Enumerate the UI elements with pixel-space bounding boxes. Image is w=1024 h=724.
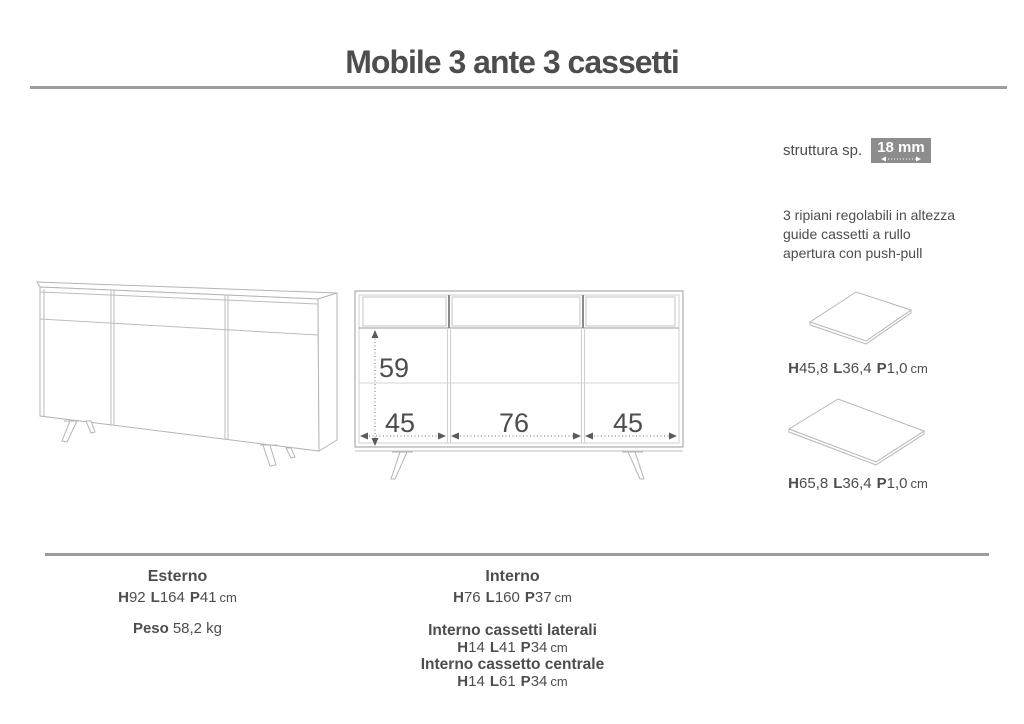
dim-letter-l: L: [490, 639, 499, 656]
dim-unit: cm: [550, 674, 567, 689]
front-view-drawing: 59 45 76 45: [350, 283, 695, 488]
dim-unit: cm: [555, 590, 572, 605]
leg-right: [628, 452, 644, 479]
dim-letter-p: P: [521, 639, 531, 656]
dim-value-l: 36,4: [842, 475, 871, 492]
leg-rear-right: [286, 448, 295, 458]
cassetto-centrale-dimensions: H14L61P34cm: [395, 673, 630, 690]
dim-letter-p: P: [525, 589, 535, 606]
dim-letter-l: L: [833, 360, 842, 377]
arrow-up: [372, 330, 379, 338]
dim-letter-h: H: [118, 589, 129, 606]
dim-value-p: 1,0: [887, 360, 908, 377]
dim-letter-l: L: [151, 589, 160, 606]
dim-value-h: 14: [468, 639, 485, 656]
thickness-dim-marks: [880, 156, 922, 162]
feature-item: 3 ripiani regolabili in altezza: [783, 206, 955, 225]
bottom-divider: [45, 553, 989, 556]
arrow-right-2: [573, 433, 581, 440]
arrow-down: [372, 438, 379, 446]
drawer-dimensions-group: Interno cassetti laterali H14L41P34cm In…: [395, 622, 630, 690]
dim-value-l: 164: [160, 589, 185, 606]
dim-letter-h: H: [453, 589, 464, 606]
dim-value-h: 14: [468, 673, 485, 690]
width-label-2: 76: [499, 408, 529, 438]
arrow-right-1: [438, 433, 446, 440]
weight-label: Peso: [133, 620, 169, 637]
internal-info-block: Interno H76L160P37cm Interno cassetti la…: [395, 568, 630, 690]
dim-value-l: 41: [499, 639, 516, 656]
dim-value-l: 160: [495, 589, 520, 606]
esterno-dimensions: H92L164P41cm: [60, 589, 295, 606]
dim-value-h: 76: [464, 589, 481, 606]
dim-unit: cm: [910, 476, 927, 491]
arrow-left-3: [585, 433, 593, 440]
esterno-title: Esterno: [60, 568, 295, 586]
drawer-right: [586, 297, 675, 326]
cassetti-laterali-title: Interno cassetti laterali: [395, 622, 630, 639]
page-title: Mobile 3 ante 3 cassetti: [0, 44, 1024, 81]
front-view-legs: [391, 452, 644, 479]
shelf-top-face: [789, 399, 924, 462]
shelf-large-drawing: [778, 393, 933, 471]
interno-dimensions: H76L160P37cm: [395, 589, 630, 606]
dim-unit: cm: [220, 590, 237, 605]
dim-unit: cm: [550, 640, 567, 655]
shelf-top-face: [810, 292, 911, 341]
dim-letter-p: P: [190, 589, 200, 606]
thickness-value: 18 mm: [877, 140, 925, 156]
dim-letter-p: P: [521, 673, 531, 690]
inner-height-label: 59: [379, 353, 409, 383]
arrow-right-3: [669, 433, 677, 440]
shelf-small-dimensions: H45,8L36,4P1,0cm: [776, 360, 940, 377]
leg-left: [391, 452, 407, 479]
cabinet-body: [37, 282, 337, 451]
width-label-3: 45: [613, 408, 643, 438]
weight-value: 58,2 kg: [173, 620, 222, 637]
dim-value-h: 92: [129, 589, 146, 606]
dim-value-p: 1,0: [887, 475, 908, 492]
feature-item: apertura con push-pull: [783, 244, 955, 263]
arrow-left-1: [360, 433, 368, 440]
spec-sheet: Mobile 3 ante 3 cassetti: [0, 0, 1024, 724]
dim-value-h: 65,8: [799, 475, 828, 492]
dims-row: H45,8L36,4P1,0cm: [788, 360, 928, 377]
dim-value-h: 45,8: [799, 360, 828, 377]
cassetto-centrale-title: Interno cassetto centrale: [395, 656, 630, 673]
title-divider: [30, 86, 1007, 89]
dim-unit: cm: [910, 361, 927, 376]
arrow-left-2: [451, 433, 459, 440]
leg-front-left: [62, 421, 77, 442]
weight-row: Peso58,2 kg: [60, 620, 295, 637]
external-info-block: Esterno H92L164P41cm Peso58,2 kg: [60, 568, 295, 637]
dim-value-p: 34: [531, 639, 548, 656]
dim-value-p: 37: [535, 589, 552, 606]
dim-letter-p: P: [877, 360, 887, 377]
feature-list: 3 ripiani regolabili in altezza guide ca…: [783, 206, 955, 263]
interno-title: Interno: [395, 568, 630, 586]
dim-letter-h: H: [788, 475, 799, 492]
cabinet-3d-drawing: [20, 265, 350, 480]
dim-letter-h: H: [457, 673, 468, 690]
dim-value-l: 36,4: [842, 360, 871, 377]
dim-value-p: 34: [531, 673, 548, 690]
dim-letter-h: H: [788, 360, 799, 377]
width-label-1: 45: [385, 408, 415, 438]
shelf-small-drawing: [780, 285, 930, 357]
dim-value-p: 41: [200, 589, 217, 606]
thickness-badge: 18 mm: [871, 138, 931, 163]
dim-letter-l: L: [490, 673, 499, 690]
shelf-large-dimensions: H65,8L36,4P1,0cm: [776, 475, 940, 492]
dim-letter-h: H: [457, 639, 468, 656]
dims-row: H65,8L36,4P1,0cm: [788, 475, 928, 492]
dim-letter-l: L: [486, 589, 495, 606]
drawer-left: [363, 297, 446, 326]
dim-letter-l: L: [833, 475, 842, 492]
cassetti-laterali-dimensions: H14L41P34cm: [395, 639, 630, 656]
cabinet-side-face: [318, 293, 337, 451]
drawer-center: [452, 297, 580, 326]
structure-thickness-label: struttura sp.: [783, 142, 862, 159]
feature-item: guide cassetti a rullo: [783, 225, 955, 244]
dimension-annotations: 59 45 76 45: [360, 330, 677, 446]
dim-value-l: 61: [499, 673, 516, 690]
cabinet-front-face: [40, 287, 319, 451]
structure-thickness-row: struttura sp. 18 mm: [783, 138, 931, 163]
dim-letter-p: P: [877, 475, 887, 492]
leg-front-right: [263, 445, 276, 466]
